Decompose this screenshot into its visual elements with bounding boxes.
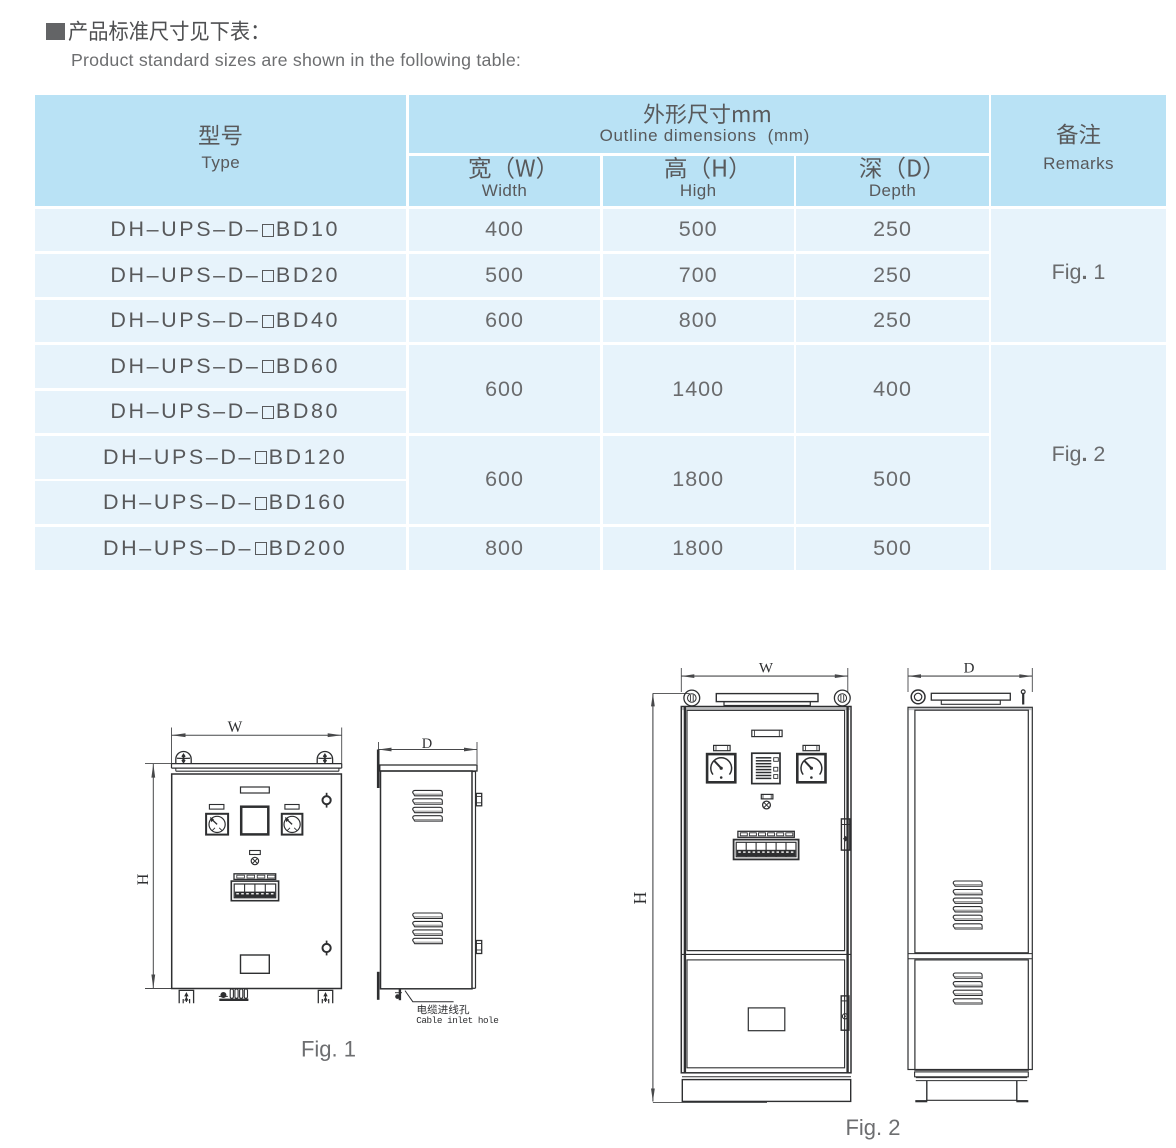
svg-text:Fig. 1: Fig. 1 <box>301 1037 356 1062</box>
svg-text:H: H <box>135 873 152 885</box>
svg-text:D: D <box>422 736 432 752</box>
svg-text:W: W <box>759 661 774 677</box>
svg-text:Cable inlet hole: Cable inlet hole <box>416 1015 498 1026</box>
svg-text:W: W <box>228 719 243 736</box>
svg-text:D: D <box>964 661 975 677</box>
svg-text:Fig. 2: Fig. 2 <box>845 1115 900 1140</box>
svg-text:H: H <box>630 891 650 904</box>
